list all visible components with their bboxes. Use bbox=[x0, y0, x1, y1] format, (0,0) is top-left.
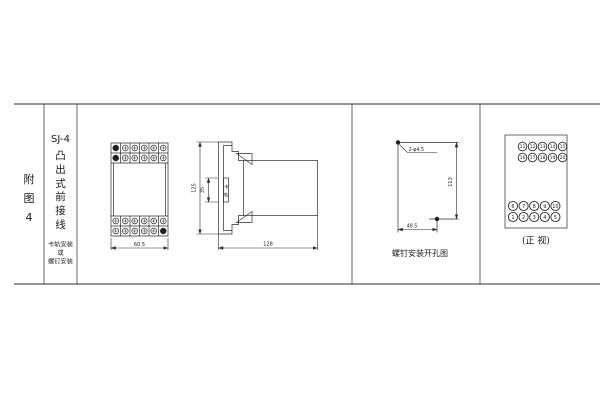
rail-char: 卡 bbox=[224, 184, 229, 191]
side-view-drawing: 卡 轨 125 35 128 bbox=[192, 142, 318, 250]
terminal-number: 10 bbox=[552, 204, 558, 210]
dimension-rail-35: 35 bbox=[200, 178, 219, 202]
terminal-number: 6 bbox=[511, 204, 514, 210]
dimension-width-60-5: 60.5 bbox=[111, 238, 168, 250]
side-profile: 卡 轨 bbox=[219, 142, 318, 234]
terminal-group-bottom: 6 7 8 9 10 1 2 3 4 5 bbox=[508, 201, 560, 221]
rail-char: 轨 bbox=[224, 192, 229, 199]
front-view-drawing: 60.5 bbox=[111, 143, 168, 250]
table-grid bbox=[14, 104, 600, 284]
terminal-number: 3 bbox=[533, 215, 536, 221]
height-dim-label: 125 bbox=[192, 183, 198, 193]
drill-plan-caption: 螺钉安装开孔图 bbox=[392, 248, 448, 258]
terminal-number: 14 bbox=[550, 144, 556, 150]
hole-spec-label: 2-φ4.5 bbox=[409, 147, 425, 153]
dimension-depth-128: 128 bbox=[219, 216, 318, 251]
terminal-number: 7 bbox=[522, 204, 525, 210]
terminal-number: 2 bbox=[522, 215, 525, 221]
terminal-number: 9 bbox=[543, 204, 546, 210]
dimension-113: 113 bbox=[448, 143, 457, 220]
terminal-group-top: 11 12 13 14 15 16 17 18 19 20 bbox=[518, 142, 567, 162]
terminal-number: 20 bbox=[560, 155, 566, 161]
drill-plan-drawing: 2-φ4.5 113 48.5 螺钉安装开孔图 bbox=[392, 140, 459, 258]
width-dim-label: 60.5 bbox=[134, 242, 145, 248]
terminal-number: 5 bbox=[554, 215, 557, 221]
figure-drawing-svg: 60.5 卡 轨 125 35 bbox=[0, 0, 600, 400]
depth-dim-label: 128 bbox=[263, 242, 273, 248]
front-view-caption: (正 视) bbox=[522, 235, 550, 247]
relay-body-front bbox=[111, 163, 168, 216]
drill-height-dim-label: 113 bbox=[448, 177, 454, 187]
terminal-number: 16 bbox=[520, 155, 526, 161]
terminal-number: 12 bbox=[530, 144, 536, 150]
terminal-number: 1 bbox=[511, 215, 514, 221]
terminal-number: 13 bbox=[540, 144, 546, 150]
figure-page: 附 图 4 SJ-4 凸 出 式 前 接 线 卡轨安装 或 螺钉安装 bbox=[0, 0, 600, 400]
terminal-front-view: 11 12 13 14 15 16 17 18 19 20 6 7 8 9 10… bbox=[505, 135, 567, 247]
top-terminal-block bbox=[111, 143, 168, 163]
terminal-number: 19 bbox=[550, 155, 556, 161]
terminal-number: 11 bbox=[520, 144, 526, 150]
terminal-number: 18 bbox=[540, 155, 546, 161]
dimension-48-5: 48.5 bbox=[398, 224, 437, 230]
drill-hole-bottom bbox=[435, 217, 439, 221]
drill-hole-top bbox=[396, 140, 400, 144]
terminal-number: 4 bbox=[543, 215, 546, 221]
rail-dim-label: 35 bbox=[200, 187, 206, 193]
hole-callout: 2-φ4.5 bbox=[400, 145, 438, 154]
terminal-number: 15 bbox=[560, 144, 566, 150]
terminal-number: 8 bbox=[533, 204, 536, 210]
drill-width-dim-label: 48.5 bbox=[407, 224, 418, 230]
bottom-terminal-block bbox=[111, 216, 168, 236]
terminal-number: 17 bbox=[530, 155, 536, 161]
